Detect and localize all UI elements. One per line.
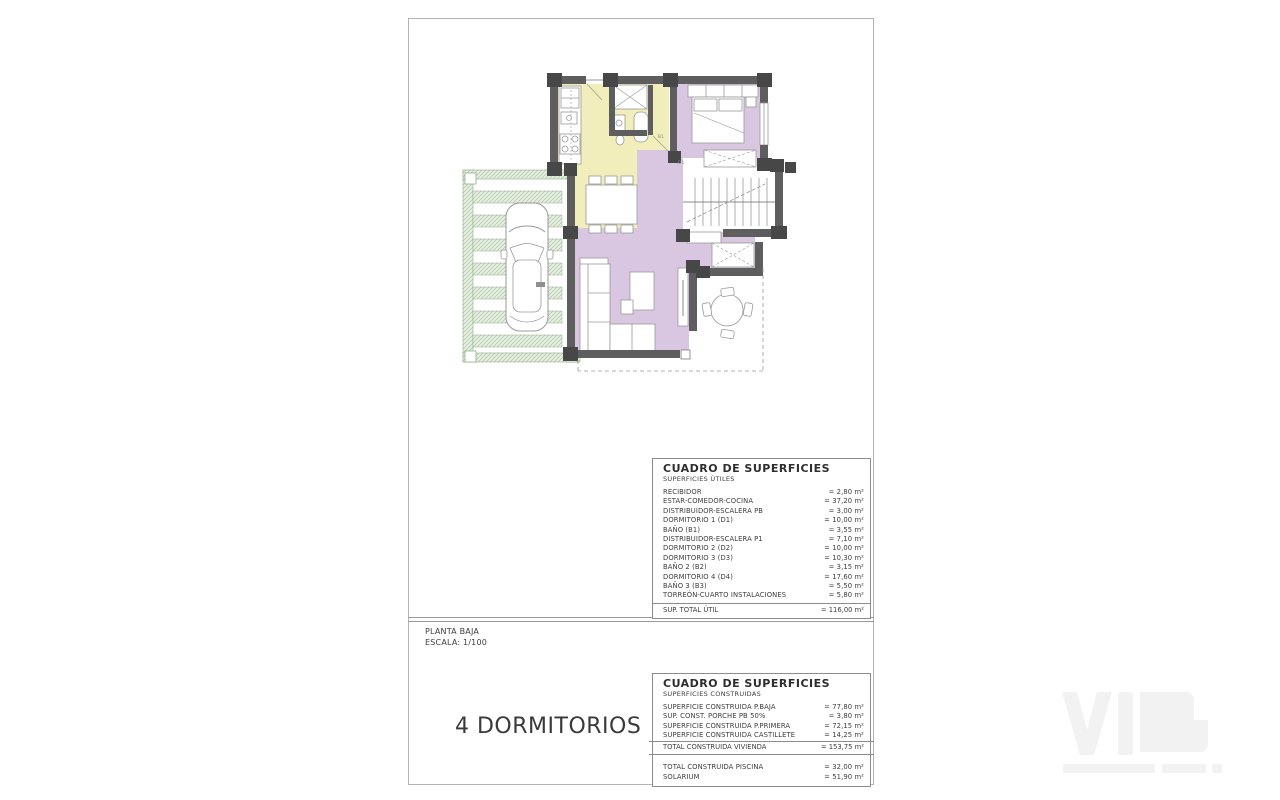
table-title: CUADRO DE SUPERFICIES xyxy=(663,463,864,475)
plan-caption: PLANTA BAJA ESCALA: 1/100 xyxy=(425,626,487,648)
table-row: SUPERFICIE CONSTRUIDA CASTILLETE = 14,25… xyxy=(663,731,864,740)
table-row: DORMITORIO 2 (D2) = 10,00 m² xyxy=(663,544,864,553)
stove-icon xyxy=(560,134,580,154)
table-total-row: SUP. TOTAL ÚTIL = 116,00 m² xyxy=(653,603,870,618)
round-table xyxy=(711,294,743,326)
table-row: RECIBIDOR = 2,80 m² xyxy=(663,488,864,497)
table-title: CUADRO DE SUPERFICIES xyxy=(663,678,864,690)
bathtub xyxy=(634,112,648,142)
watermark-logo xyxy=(1062,692,1222,773)
table-subtitle: SUPERFICIES ÚTILES xyxy=(663,475,864,483)
headline-bedrooms: 4 DORMITORIOS xyxy=(455,714,641,739)
table-rows: SUPERFICIE CONSTRUIDA P.BAJA = 77,80 m² … xyxy=(653,698,870,741)
table-rows: RECIBIDOR = 2,80 m² ESTAR-COMEDOR-COCINA… xyxy=(653,483,870,601)
table-row: SOLARIUM = 51,90 m² xyxy=(663,773,864,782)
surface-table-utiles: CUADRO DE SUPERFICIES SUPERFICIES ÚTILES… xyxy=(652,458,871,619)
table-row: DORMITORIO 3 (D3) = 10,30 m² xyxy=(663,554,864,563)
table-row: ESTAR-COMEDOR-COCINA = 37,20 m² xyxy=(663,497,864,506)
car-top-view xyxy=(501,203,553,331)
table-row: SUPERFICIE CONSTRUIDA P.PRIMERA = 72,15 … xyxy=(663,722,864,731)
plan-scale: ESCALA: 1/100 xyxy=(425,637,487,648)
tv-unit xyxy=(678,268,688,326)
kitchen-counter xyxy=(559,86,581,164)
table-row: DISTRIBUIDOR-ESCALERA PB = 3,00 m² xyxy=(663,507,864,516)
table-rows: TOTAL CONSTRUIDA PISCINA = 32,00 m² SOLA… xyxy=(653,763,870,786)
table-row: DORMITORIO 1 (D1) = 10,00 m² xyxy=(663,516,864,525)
table-row: DORMITORIO 4 (D4) = 17,60 m² xyxy=(663,573,864,582)
surface-table-construidas: CUADRO DE SUPERFICIES SUPERFICIES CONSTR… xyxy=(652,673,871,787)
staircase xyxy=(683,176,775,229)
carport xyxy=(463,170,580,362)
label-b1: B1 xyxy=(658,134,664,140)
table-row: SUP. CONST. PORCHE PB 50% = 3,80 m² xyxy=(663,712,864,721)
table-row: BAÑO (B1) = 3,55 m² xyxy=(663,526,864,535)
label-d1: D1 xyxy=(678,160,684,166)
table-row: DISTRIBUIDOR-ESCALERA P1 = 7,10 m² xyxy=(663,535,864,544)
table-subtitle: SUPERFICIES CONSTRUIDAS xyxy=(663,690,864,698)
table-total-row: TOTAL CONSTRUIDA VIVIENDA = 153,75 m² xyxy=(649,741,874,755)
table-row: TOTAL CONSTRUIDA PISCINA = 32,00 m² xyxy=(663,763,864,772)
table-row: TORREÓN-CUARTO INSTALACIONES = 5,80 m² xyxy=(663,591,864,600)
floor-plan: B1 D1 xyxy=(0,0,1280,800)
terrace-table-set xyxy=(702,287,753,339)
table-row: BAÑO 2 (B2) = 3,15 m² xyxy=(663,563,864,572)
toilet xyxy=(616,135,624,145)
table-row: SUPERFICIE CONSTRUIDA P.BAJA = 77,80 m² xyxy=(663,703,864,712)
plan-name: PLANTA BAJA xyxy=(425,626,487,637)
